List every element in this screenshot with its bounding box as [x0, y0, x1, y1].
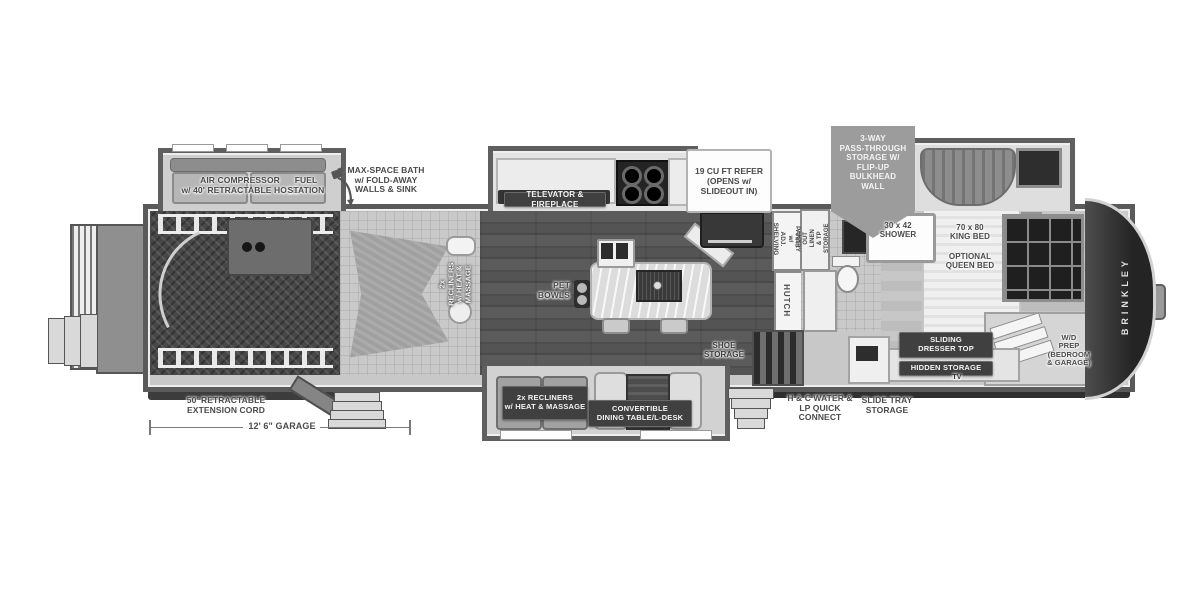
bedroom-slide-window — [1016, 148, 1062, 188]
patio-railing-panel — [70, 224, 99, 320]
brand-logo-text: BRINKLEY — [1120, 257, 1130, 335]
bath-vanity — [803, 270, 837, 332]
toilet-bowl — [836, 265, 859, 293]
living-slide-window — [500, 430, 572, 440]
queen-bed-label: OPTIONAL QUEEN BED — [931, 253, 1009, 271]
hutch-label: HUTCH — [782, 285, 791, 318]
garage-slide-window — [280, 144, 322, 152]
pet-bowl — [577, 295, 587, 305]
garage-sofa-cupholder — [242, 242, 252, 252]
extension-cord-label: 50' RETRACTABLE EXTENSION CORD — [166, 396, 286, 415]
sliding-dresser-badge: SLIDING DRESSER TOP — [899, 332, 993, 358]
patio-ramp-door — [96, 224, 146, 374]
dimension-tick-right — [409, 420, 411, 435]
cooktop-burner — [622, 184, 642, 204]
hutch-label-wrap: HUTCH — [771, 271, 802, 331]
wd-prep-label: W/D PREP (BEDROOM & GARAGE) — [1036, 334, 1102, 368]
sink-basin — [616, 243, 628, 259]
entry-step — [737, 418, 765, 429]
refer-callout-box: 19 CU FT REFER (OPENS w/ SLIDEOUT IN) — [686, 149, 772, 213]
dimension-line-left — [151, 427, 243, 428]
island-faucet — [653, 281, 662, 290]
dining-table-badge: CONVERTIBLE DINING TABLE/L-DESK — [588, 400, 692, 427]
fuel-station-label: FUEL STATION — [280, 176, 332, 195]
living-recliners-badge: 2x RECLINERS w/ HEAT & MASSAGE — [502, 386, 588, 420]
desk-item — [856, 346, 878, 361]
front-window-grid — [1002, 214, 1084, 302]
fuel-nozzle-icon — [328, 166, 362, 208]
garage-recliners-label: 2x RECLINERS w/ HEAT & MASSAGE — [439, 262, 474, 305]
floorplan-canvas: BRINKLEY 12' 6" GARAGE AIR COMPRESSOR w/… — [0, 0, 1200, 600]
sink-basin — [601, 243, 613, 259]
king-bed-label: 70 x 80 KING BED — [934, 224, 1006, 242]
garage-slide-window — [172, 144, 214, 152]
island-stool — [660, 318, 688, 334]
garage-sofa — [227, 218, 313, 276]
dimension-line-right — [320, 427, 409, 428]
kitchen-counter-right — [668, 158, 688, 206]
bedroom-stairs — [752, 330, 804, 386]
linen-label: PULL-OUT LINEN & TP STORAGE — [796, 223, 830, 253]
island-stool — [602, 318, 630, 334]
refer-callout-text: 19 CU FT REFER (OPENS w/ SLIDEOUT IN) — [695, 166, 763, 197]
refrigerator-handle — [708, 240, 752, 243]
pet-bowl — [577, 283, 587, 293]
shoe-storage-label: SHOE STORAGE — [698, 342, 750, 360]
garage-slide-sofa-back — [170, 158, 326, 172]
tv-label: TV — [944, 374, 970, 382]
garage-dimension-label: 12' 6" GARAGE — [243, 421, 321, 431]
hc-water-label: H & C WATER & LP QUICK CONNECT — [778, 394, 862, 423]
garage-sofa-cupholder — [255, 242, 265, 252]
brand-logo: BRINKLEY — [1108, 246, 1142, 346]
patio-step — [80, 314, 98, 368]
cooktop-burner — [644, 184, 664, 204]
linen-label-wrap: PULL-OUT LINEN & TP STORAGE — [798, 207, 828, 269]
cooktop-burner — [622, 166, 642, 186]
shower-label: 30 x 42 SHOWER — [867, 222, 929, 240]
living-slide-window — [640, 430, 712, 440]
cooktop-burner — [644, 166, 664, 186]
slide-tray-label: SLIDE TRAY STORAGE — [856, 396, 918, 415]
garage-recliners-label-wrap: 2x RECLINERS w/ HEAT & MASSAGE — [438, 228, 474, 340]
pet-bowls-label: PET BOWLS — [514, 281, 570, 300]
televator-fireplace-badge: TELEVATOR & FIREPLACE — [504, 192, 606, 207]
garage-slide-window — [226, 144, 268, 152]
